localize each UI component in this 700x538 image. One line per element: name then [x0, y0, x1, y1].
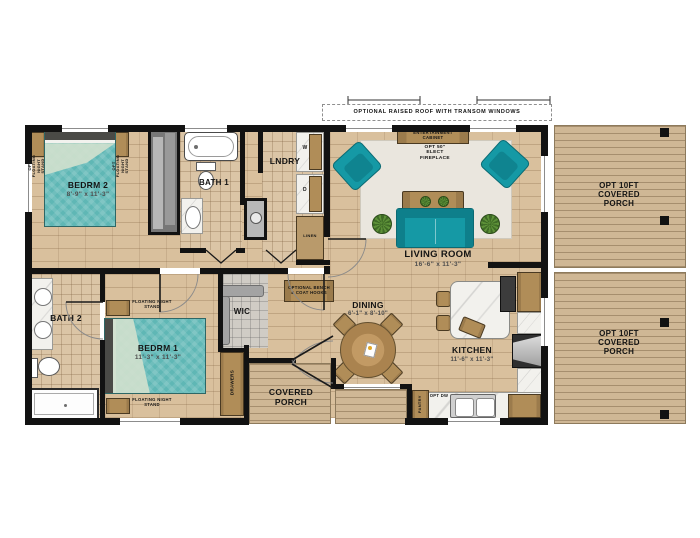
utility-closet: [244, 198, 267, 240]
room-dims-bedrm1: 11'-3" x 11'-3": [118, 354, 198, 361]
note-opt-floating-nightstand: OPT FLOATING NIGHT STAND: [28, 151, 46, 181]
counter: [517, 368, 543, 394]
room-label-bedrm1: BEDRM 1: [118, 344, 198, 354]
window: [185, 125, 227, 132]
bathtub: [184, 132, 238, 161]
note-floating-nightstand: FLOATING NIGHT STAND: [132, 398, 172, 407]
sofa: [396, 208, 474, 248]
dryer: [296, 174, 324, 214]
window: [346, 125, 392, 132]
entry-bench: OPTIONAL BENCH & COAT HOOKS: [284, 280, 334, 302]
window: [120, 418, 180, 425]
fireplace-label: OPT 50" ELECT FIREPLACE: [416, 145, 454, 161]
range: [512, 334, 543, 368]
room-label-covered-porch: COVERED PORCH: [266, 388, 316, 407]
drawers-label: DRAWERS: [229, 361, 234, 405]
wall: [218, 268, 223, 352]
pantry-label: PANTRY: [418, 384, 422, 424]
sliding-closet: [148, 128, 180, 235]
window: [344, 384, 400, 389]
room-label-lndry: LNDRY: [260, 157, 310, 167]
wall: [200, 268, 288, 274]
toilet-bowl: [38, 357, 60, 376]
tv-cabinet-label: ENTERTAINMENT CABINET: [410, 131, 456, 140]
plant-icon: [438, 196, 449, 207]
porch-post: [660, 128, 669, 137]
room-dims-living: 16'-6" x 11'-3": [392, 261, 484, 268]
wall: [180, 248, 206, 253]
wall: [236, 248, 245, 253]
note-floating-nightstand: FLOATING NIGHT STAND: [132, 300, 172, 309]
double-sink: [450, 394, 496, 418]
bed: [44, 131, 116, 227]
toilet: [196, 162, 216, 171]
wall: [244, 345, 249, 425]
wall: [240, 125, 245, 205]
optional-roof-label: OPTIONAL RAISED ROOF WITH TRANSOM WINDOW…: [354, 109, 521, 115]
window: [448, 418, 500, 425]
note-opt-floating-nightstand: OPT FLOATING NIGHT STAND: [112, 151, 130, 181]
bench-label: OPTIONAL BENCH & COAT HOOKS: [287, 286, 332, 295]
wall: [324, 125, 330, 237]
shower: [29, 388, 99, 420]
porch-post: [660, 410, 669, 419]
window: [470, 125, 516, 132]
counter: [517, 312, 543, 334]
room-label-kitchen: KITCHEN: [438, 346, 506, 356]
nightstand: [106, 300, 130, 316]
room-label-living: LIVING ROOM: [392, 250, 484, 261]
window: [62, 125, 108, 132]
wall: [407, 384, 412, 425]
room-label-bath1: BATH 1: [186, 179, 242, 188]
washer-letter: W: [299, 146, 311, 152]
room-label-bath2: BATH 2: [36, 314, 96, 324]
wall: [488, 262, 548, 268]
room-label-upper-porch: OPT 10FT COVERED PORCH: [596, 182, 642, 209]
room-dims-kitchen: 11'-6" x 11'-3": [438, 357, 506, 364]
dishwasher-label: OPT DW: [429, 394, 449, 399]
wall: [100, 268, 105, 302]
fridge: [500, 276, 516, 312]
corner-cabinet: [508, 394, 541, 418]
wall: [324, 266, 330, 274]
plant-icon: [420, 196, 431, 207]
window: [541, 298, 548, 346]
room-label-dining: DINING: [338, 301, 398, 311]
sink-vanity: [181, 198, 203, 234]
floor-plan: ENTERTAINMENT CABINET OPT 50" ELECT FIRE…: [0, 0, 700, 538]
plant-icon: [480, 214, 500, 234]
wall: [100, 340, 105, 425]
window: [541, 156, 548, 212]
linen-label: LINEN: [296, 234, 324, 238]
island-stool: [436, 315, 451, 331]
covered-porch-deck: [335, 389, 407, 424]
room-dims-dining: 6'-1" x 8'-10": [338, 311, 398, 318]
wall: [25, 268, 160, 274]
room-label-wic: WIC: [224, 308, 260, 317]
plant-icon: [372, 214, 392, 234]
room-label-lower-porch: OPT 10FT COVERED PORCH: [596, 330, 642, 357]
porch-post: [660, 318, 669, 327]
nightstand: [106, 398, 130, 414]
optional-roof-outline: OPTIONAL RAISED ROOF WITH TRANSOM WINDOW…: [322, 104, 552, 121]
porch-post: [660, 216, 669, 225]
wall: [248, 358, 296, 363]
room-label-bedrm2: BEDRM 2: [48, 181, 128, 191]
wall: [296, 260, 330, 265]
dryer-letter: D: [299, 188, 311, 194]
room-dims-bedrm2: 8'-9" x 11'-3": [48, 191, 128, 198]
island-stool: [436, 291, 451, 307]
dining-table: [340, 322, 396, 378]
upper-cabinet: [517, 272, 543, 312]
fireplace-note: OPT 50" ELECT FIREPLACE: [399, 146, 471, 160]
